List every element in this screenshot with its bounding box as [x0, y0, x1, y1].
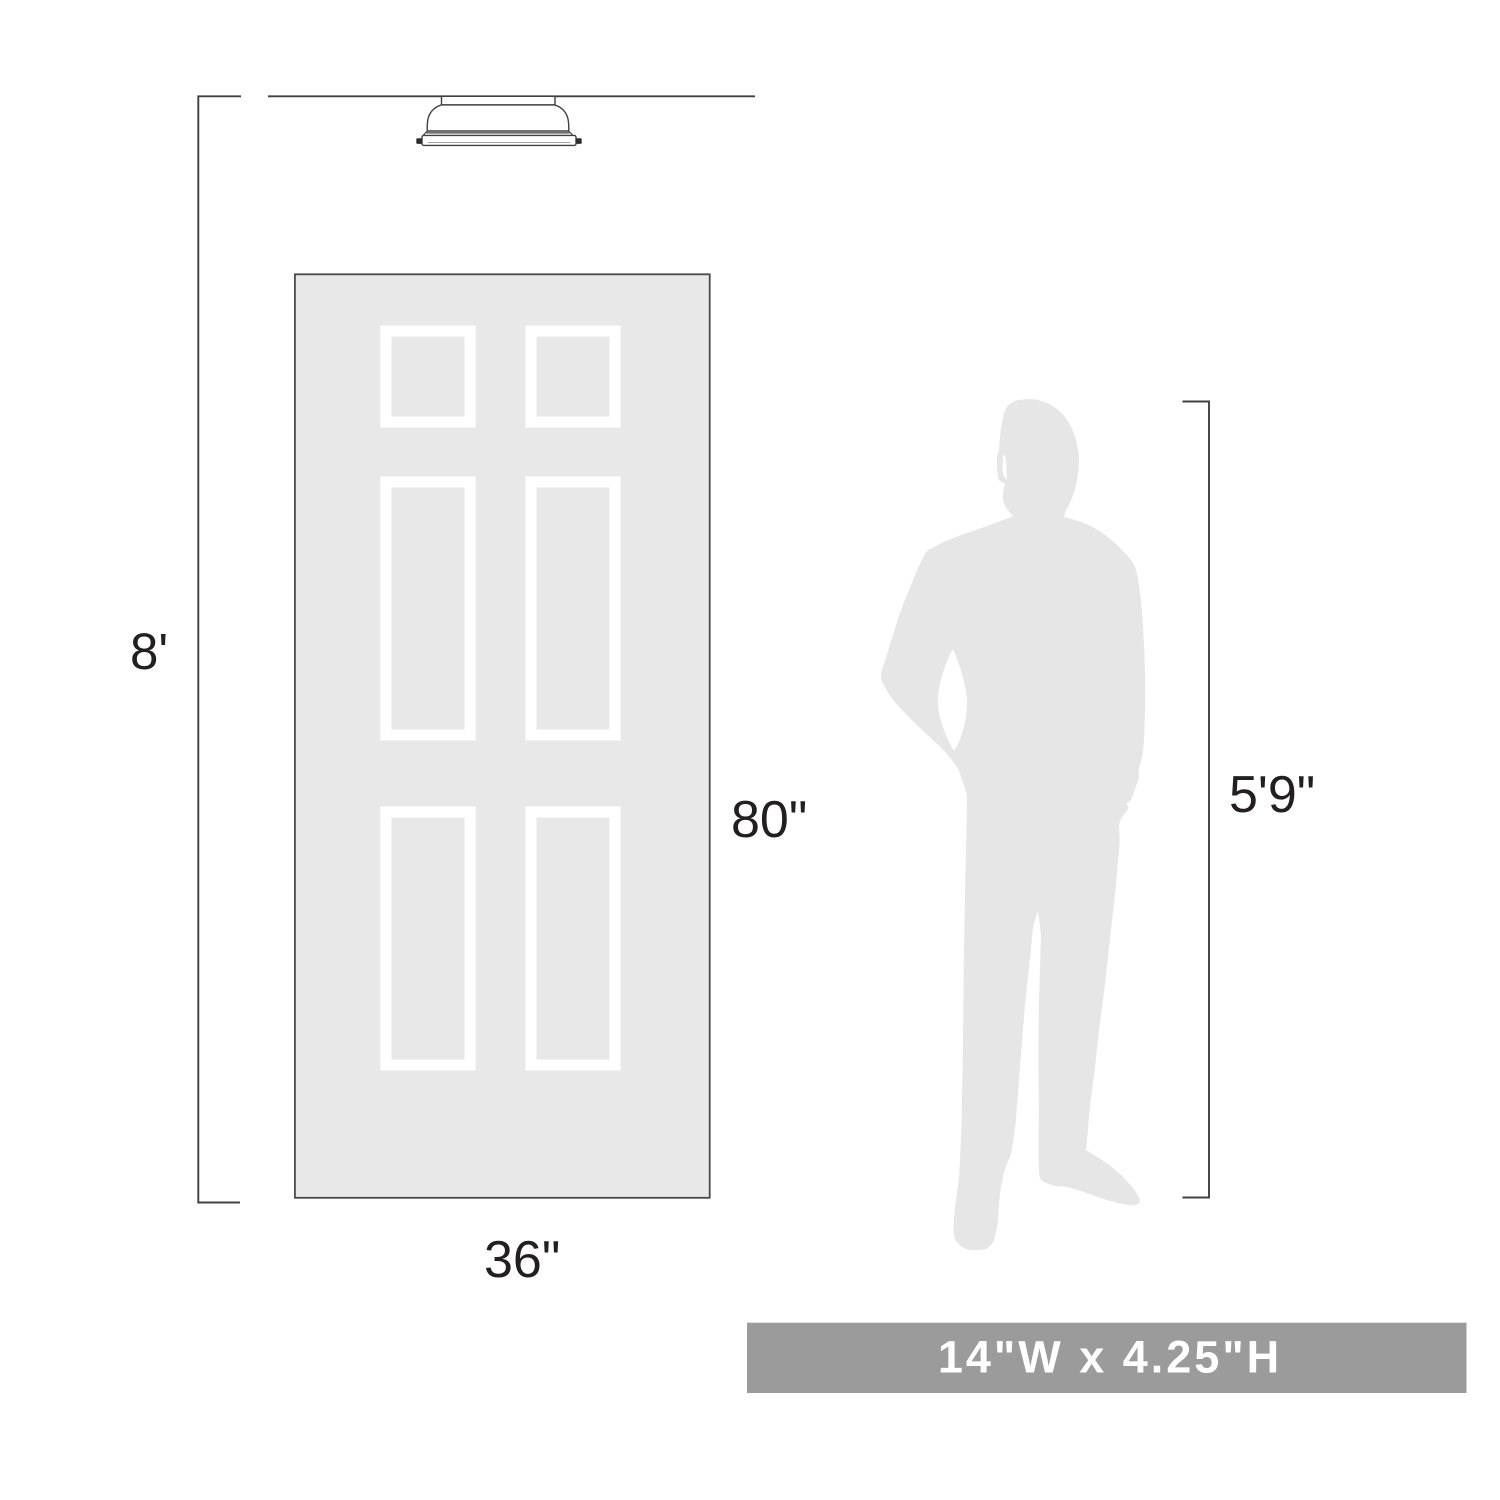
- svg-text:5'9": 5'9": [1229, 766, 1315, 824]
- svg-text:36": 36": [484, 1231, 560, 1289]
- svg-text:14"W x 4.25"H: 14"W x 4.25"H: [938, 1332, 1282, 1383]
- svg-text:8': 8': [130, 623, 168, 680]
- svg-text:80": 80": [731, 791, 807, 849]
